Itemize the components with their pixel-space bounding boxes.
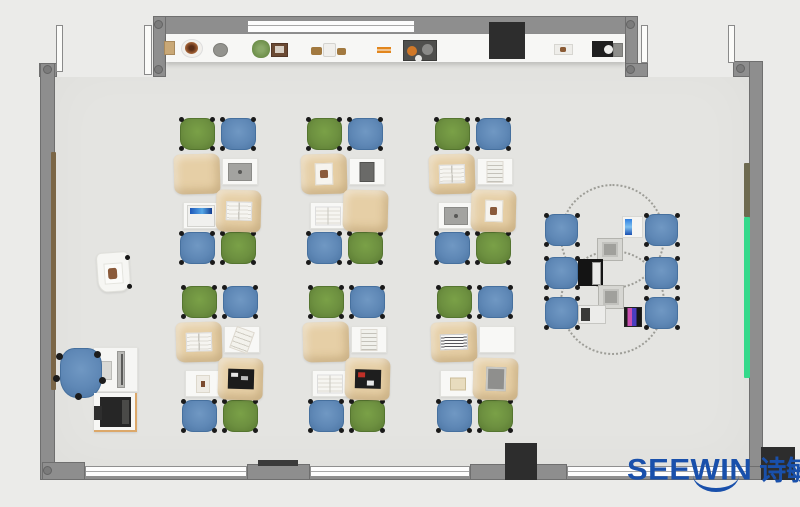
student-desk-white [349, 158, 385, 185]
student-chair-blue [476, 118, 511, 150]
decor-box [164, 41, 175, 55]
desk-item-book-open [315, 206, 341, 225]
collab-chair-blue [545, 257, 578, 289]
student-desk-tan [430, 321, 477, 362]
decor-wood-piece [311, 47, 322, 55]
student-chair-blue [350, 286, 385, 318]
decor-wood-piece [337, 48, 346, 55]
collab-laptop-white [578, 305, 606, 324]
desk-item-paper-photo [315, 163, 334, 185]
student-desk-tan [302, 321, 349, 362]
student-desk-white [438, 202, 474, 229]
collab-chair-blue [545, 214, 578, 246]
collab-chair-blue [645, 214, 678, 246]
left-wall-board [51, 152, 56, 390]
right-wall-board-olive [744, 163, 750, 217]
wall-corner-dot [43, 466, 52, 475]
student-chair-green [348, 232, 383, 264]
pillar-bottom [505, 443, 537, 480]
student-chair-green [478, 400, 513, 432]
student-desk-white [310, 202, 346, 229]
decor-device-side [613, 43, 623, 57]
door-leaf-top-right-2 [728, 25, 735, 63]
seewin-logo-cjk: 诗敏 [759, 456, 800, 486]
decor-art-tray [403, 40, 437, 61]
desk-item-card-beige [450, 377, 466, 390]
top-window [247, 20, 415, 33]
floor-plan-render: SEEWIN诗敏 [0, 0, 800, 507]
wall-corner-dot [154, 65, 163, 74]
decor-pot [181, 39, 203, 58]
desk-item-laptop-gray [444, 207, 468, 225]
student-desk-tan [300, 153, 347, 194]
student-desk-white [351, 326, 387, 353]
student-chair-blue [221, 118, 256, 150]
student-chair-blue [182, 400, 217, 432]
collab-chair-blue [645, 297, 678, 329]
wall-corner-dot [154, 20, 163, 29]
desk-item-book-open [186, 332, 212, 352]
student-chair-green [350, 400, 385, 432]
desk-item-frame-gray [485, 367, 506, 392]
desk-item-paper-tilt [229, 325, 255, 353]
student-desk-tan [175, 321, 222, 362]
desk-item-photo-small [196, 375, 210, 393]
student-chair-green [309, 286, 344, 318]
desk-item-tablet-dark [360, 162, 375, 182]
door-leaf-top-right-1 [641, 25, 648, 63]
collab-tablet-pink [624, 307, 642, 327]
decor-bottle [323, 43, 336, 57]
student-desk-white [479, 326, 515, 353]
teacher-office-chair [60, 348, 102, 398]
desk-item-laptop-black-red [354, 369, 380, 389]
teacher-monitor [117, 351, 125, 388]
student-desk-white [224, 326, 260, 353]
wall-corner-dot [43, 65, 52, 74]
seewin-logo-swoosh [693, 475, 739, 492]
student-desk-tan [472, 357, 518, 400]
student-chair-green [435, 118, 470, 150]
easel-paper [108, 268, 117, 279]
desk-item-keyboard-white [440, 334, 468, 351]
student-chair-green [307, 118, 342, 150]
desk-item-laptop-black [227, 369, 254, 390]
decor-plant [252, 40, 270, 58]
student-desk-tan [342, 189, 388, 232]
desk-item-book-open [225, 201, 251, 221]
desk-item-paper-lines [487, 161, 504, 183]
collab-chair-blue [545, 297, 578, 329]
decor-bowl [213, 43, 228, 57]
right-wall [749, 61, 763, 480]
collab-chair-blue [645, 257, 678, 289]
collab-tablet-blue [622, 216, 643, 238]
wall-corner-dot [626, 20, 635, 29]
desk-item-paper-photo [484, 200, 503, 222]
teacher-easel [96, 251, 132, 293]
wall-vent [258, 460, 298, 466]
student-chair-blue [437, 400, 472, 432]
student-chair-green [223, 400, 258, 432]
student-chair-blue [307, 232, 342, 264]
student-chair-blue [435, 232, 470, 264]
student-desk-white [440, 370, 476, 397]
student-chair-green [476, 232, 511, 264]
collab-laptop-black [578, 259, 603, 286]
decor-sticks [377, 47, 391, 53]
student-desk-tan [470, 189, 516, 232]
outside-area [638, 0, 800, 77]
student-desk-tan [428, 153, 475, 194]
printer [100, 397, 131, 427]
student-desk-tan [217, 357, 263, 400]
collab-device-box [597, 238, 623, 261]
student-desk-white [312, 370, 348, 397]
student-desk-tan [344, 357, 390, 400]
desk-item-screen-blue [187, 205, 215, 227]
bottom-window-2 [310, 466, 470, 477]
door-leaf-top-left-1 [56, 25, 63, 72]
student-desk-tan [173, 153, 220, 194]
wall-corner-dot [626, 65, 635, 74]
decor-device [592, 41, 613, 57]
student-desk-white [477, 158, 513, 185]
student-chair-green [182, 286, 217, 318]
seewin-logo: SEEWIN诗敏 [627, 449, 800, 488]
wall-corner-dot [736, 64, 745, 73]
desk-item-book-open [317, 374, 343, 393]
student-desk-tan [215, 189, 261, 232]
bottom-wall-segment-1 [247, 464, 310, 480]
desk-item-laptop-gray [228, 163, 252, 181]
student-chair-green [221, 232, 256, 264]
student-chair-blue [180, 232, 215, 264]
door-leaf-top-left-2 [144, 25, 152, 75]
pillar-top [489, 22, 525, 59]
student-chair-blue [478, 286, 513, 318]
student-chair-blue [223, 286, 258, 318]
right-wall-board-green [744, 217, 750, 378]
student-desk-white [222, 158, 258, 185]
desk-item-paper-lines [361, 329, 378, 351]
decor-small-tray [554, 44, 573, 55]
outside-area [0, 0, 153, 77]
student-chair-green [180, 118, 215, 150]
student-chair-green [437, 286, 472, 318]
desk-item-book-open [439, 164, 465, 184]
student-chair-blue [348, 118, 383, 150]
decor-photo-frame [271, 43, 288, 57]
student-chair-blue [309, 400, 344, 432]
teacher-keyboard [101, 361, 112, 380]
student-desk-white [185, 370, 221, 397]
student-desk-white [183, 202, 219, 229]
bottom-window-1 [85, 466, 247, 477]
